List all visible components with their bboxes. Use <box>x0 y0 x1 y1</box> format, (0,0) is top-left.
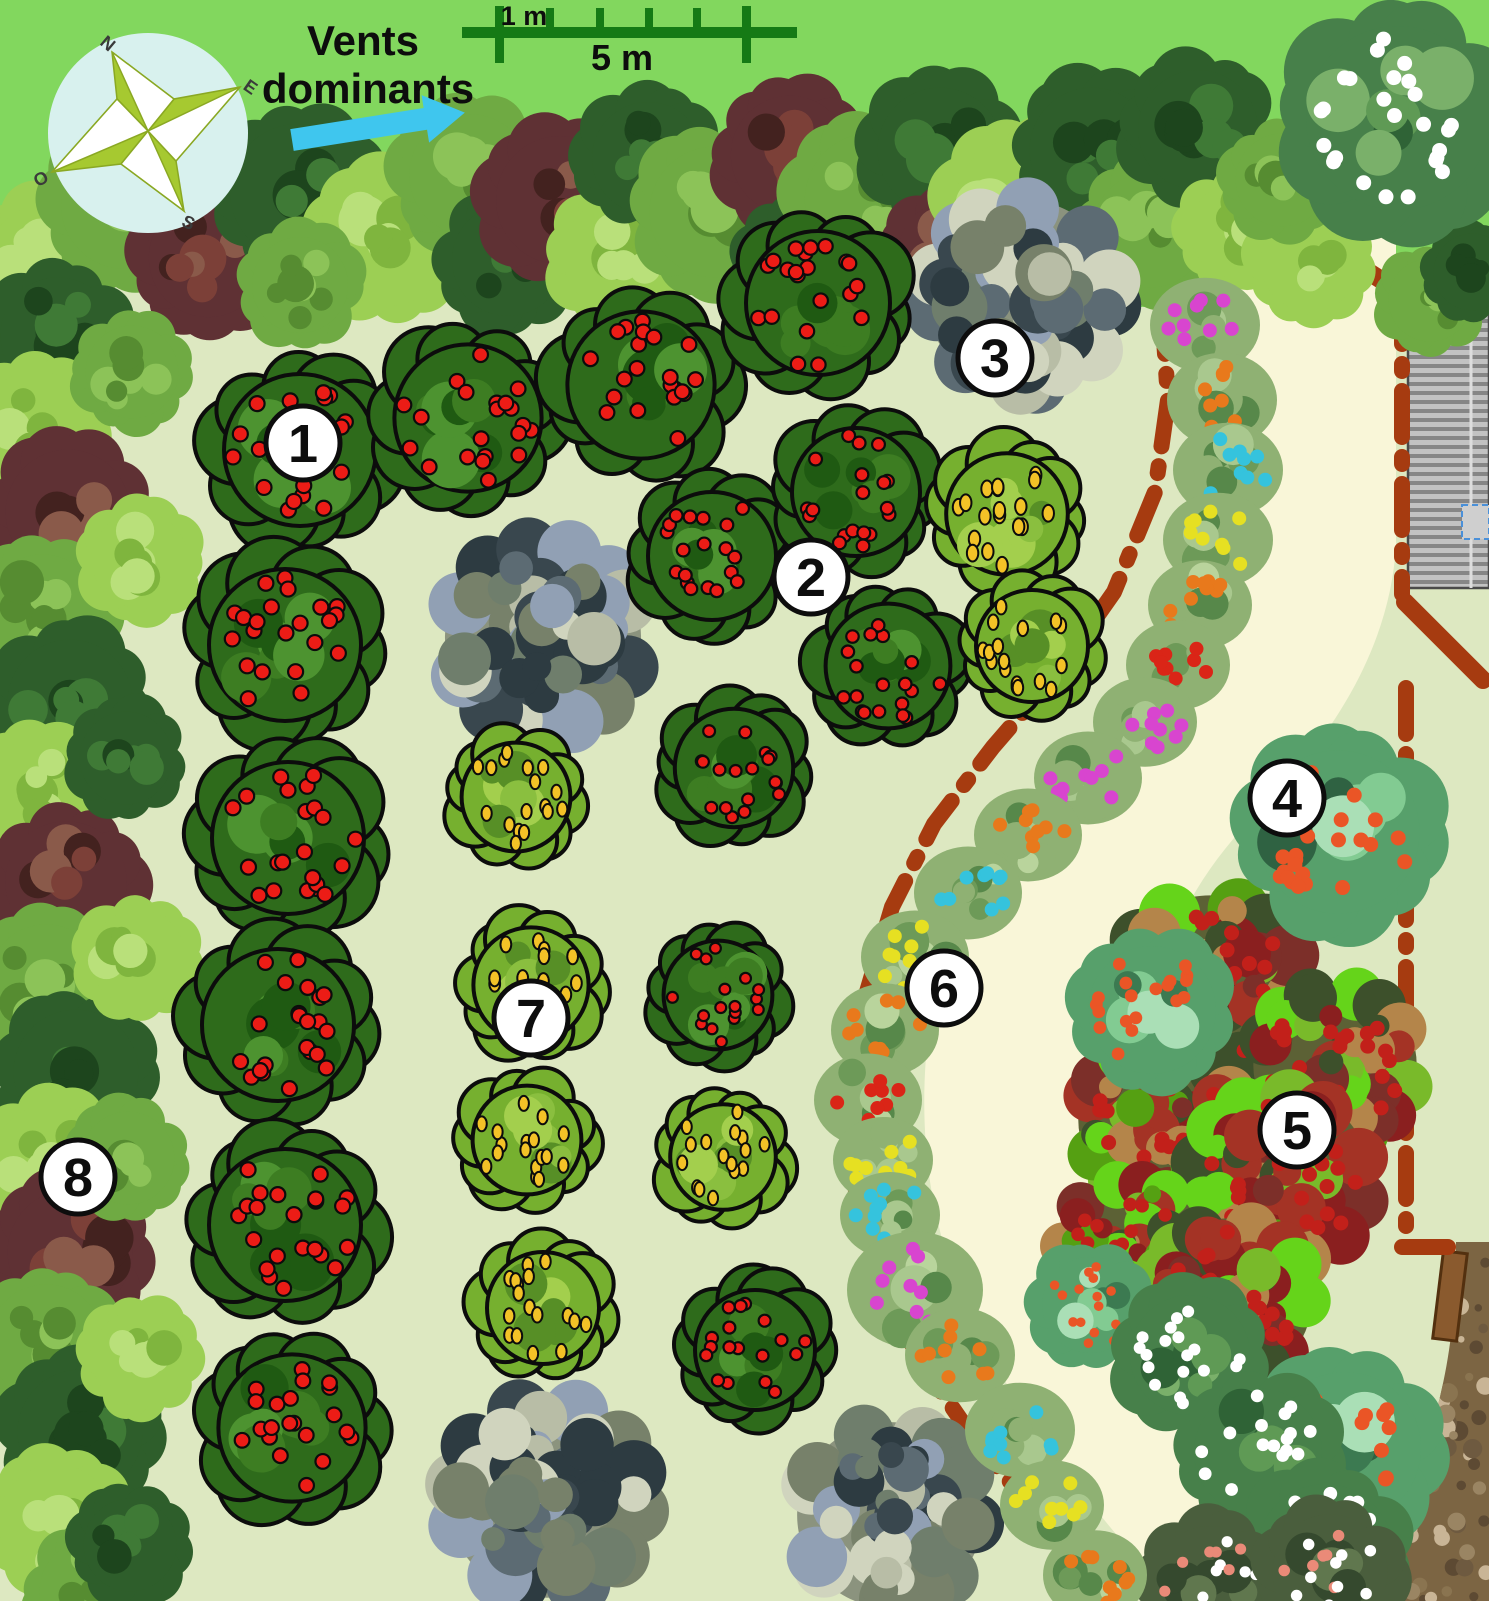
zone-marker-8: 8 <box>41 1140 115 1214</box>
zone-marker-4: 4 <box>1250 761 1324 835</box>
garden-plan: 12345678 N E S O Vents dominants 1 <box>0 0 1489 1601</box>
tree-walnut <box>428 517 658 753</box>
tree-apple <box>656 685 811 846</box>
scale-label-5m: 5 m <box>591 37 653 78</box>
zone-marker-number: 8 <box>63 1148 93 1208</box>
zone-marker-1: 1 <box>266 406 340 480</box>
zone-marker-number: 6 <box>929 959 959 1019</box>
scale-label-1m: 1 m <box>501 1 548 31</box>
garden-plan-canvas: 12345678 N E S O Vents dominants 1 <box>0 0 1489 1601</box>
zone-marker-number: 2 <box>796 548 826 608</box>
zone-marker-number: 3 <box>980 329 1010 389</box>
zone-marker-6: 6 <box>907 951 981 1025</box>
zone-marker-3: 3 <box>958 321 1032 395</box>
zone-marker-7: 7 <box>494 981 568 1055</box>
zone-marker-5: 5 <box>1260 1093 1334 1167</box>
terrace-corner <box>1462 505 1489 539</box>
zone-marker-2: 2 <box>774 540 848 614</box>
wind-label-line1: Vents <box>307 17 419 64</box>
zone-marker-number: 1 <box>288 414 318 474</box>
zone-marker-number: 5 <box>1282 1101 1312 1161</box>
zone-marker-number: 7 <box>516 989 546 1049</box>
zone-marker-number: 4 <box>1272 769 1302 829</box>
